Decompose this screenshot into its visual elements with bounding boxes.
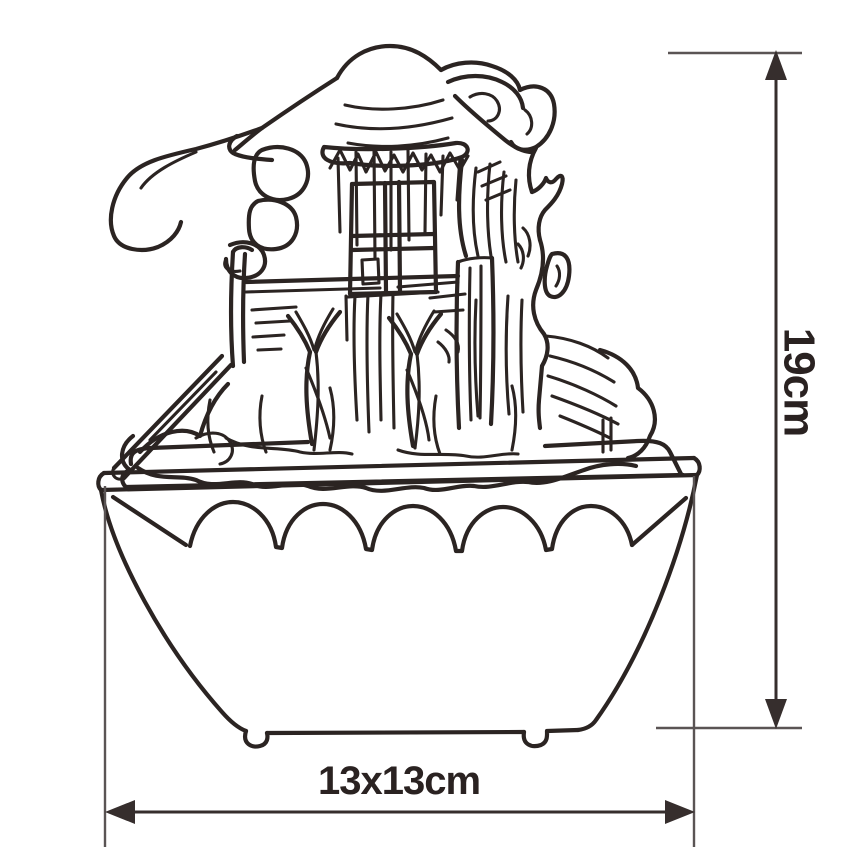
trunk-knot-inner xyxy=(556,266,560,286)
stream-1 xyxy=(354,296,357,420)
basin-rim-cap-right xyxy=(694,458,700,475)
branch-b-leg-1 xyxy=(407,354,413,446)
arrow-right-icon xyxy=(665,800,695,824)
roof-strand-curl xyxy=(470,94,499,121)
bark-lower-3 xyxy=(521,300,523,412)
fringe-stick-3 xyxy=(374,150,375,258)
scallop-left-slant xyxy=(113,497,186,545)
bark-line-2 xyxy=(488,164,492,262)
board-edge-top xyxy=(114,356,222,468)
water-dash-2 xyxy=(256,321,290,323)
board-edge-bottom xyxy=(124,365,231,478)
waterfall-column-right xyxy=(491,258,493,424)
window-cross-h1 xyxy=(352,234,434,236)
fountain-sketch xyxy=(98,46,699,746)
waterfall-inner-1 xyxy=(469,268,471,420)
water-dash-3 xyxy=(253,335,284,337)
branch-a-leg-1 xyxy=(306,352,312,444)
basin-foot-right xyxy=(524,730,578,746)
stream-3 xyxy=(380,294,381,420)
stream-2 xyxy=(367,294,369,432)
basin-foot-left xyxy=(245,731,267,746)
water-tick-2 xyxy=(438,342,449,362)
bark-lower-1 xyxy=(475,300,478,416)
pile-streak-4 xyxy=(512,386,516,450)
window-cross-v1 xyxy=(385,183,386,292)
height-dimension: 19cm xyxy=(656,50,824,729)
stream-5 xyxy=(346,296,347,340)
trunk-branch xyxy=(532,176,563,240)
trough-left-column-b xyxy=(243,254,245,362)
bark-line-1 xyxy=(473,168,478,256)
roof-left-slope xyxy=(235,78,337,150)
trunk-knot xyxy=(545,253,570,297)
waterfall-column-left xyxy=(457,262,459,428)
pile-streak-2 xyxy=(330,388,334,450)
basin-side-left xyxy=(101,490,246,731)
trunk-right-upper xyxy=(529,148,536,192)
fringe-stick-7 xyxy=(441,156,443,215)
basin-bottom-edge xyxy=(267,732,524,733)
fringe-stick-6 xyxy=(425,154,426,232)
tree-trunk xyxy=(459,148,569,428)
ripple-1 xyxy=(546,336,608,358)
bark-line-4 xyxy=(514,180,518,262)
fringe-stick-5 xyxy=(408,150,409,240)
scallop-arches xyxy=(190,502,632,551)
bark-lower-2 xyxy=(506,296,509,414)
basin-side-right xyxy=(578,475,697,730)
height-dimension-label: 19cm xyxy=(775,328,824,437)
trough-top-edge-3 xyxy=(398,282,458,287)
arrow-left-icon xyxy=(105,800,135,824)
fringe-stick-1 xyxy=(338,158,340,232)
basin xyxy=(98,441,699,747)
roof-strand-right-2 xyxy=(448,76,523,108)
trunk-left-edge xyxy=(459,160,466,256)
waterfall-top xyxy=(458,258,492,262)
water-dash-5 xyxy=(430,294,465,298)
trough-left-column-a xyxy=(231,252,233,366)
window-cross-v2 xyxy=(399,182,400,291)
stone-2 xyxy=(249,200,297,250)
water-dash-4 xyxy=(258,349,281,350)
basin-rim-cap-left xyxy=(98,473,104,490)
width-dimension-label: 13x13cm xyxy=(318,759,480,803)
water-dash-1 xyxy=(252,307,296,310)
trough-top-edge-2 xyxy=(246,288,380,292)
arrow-up-icon xyxy=(765,50,787,80)
fringe-stick-2 xyxy=(356,152,357,245)
window-cross-h2 xyxy=(352,248,434,250)
fountain-dimension-diagram: 19cm 13x13cm xyxy=(0,0,868,868)
waterfall-inner-2 xyxy=(480,266,481,418)
stone-stack xyxy=(225,147,308,278)
stream-4 xyxy=(393,293,394,428)
ripple-3 xyxy=(548,376,616,406)
roof-inner-curl-right xyxy=(525,110,532,134)
scallop-right-slant xyxy=(632,498,686,545)
branch-supports xyxy=(288,309,441,450)
pile-streak-3 xyxy=(434,396,440,454)
arrow-down-icon xyxy=(765,699,787,729)
thatch-line-2 xyxy=(336,118,452,129)
bark-line-3 xyxy=(502,172,506,262)
roof-peak xyxy=(337,46,441,78)
bark-curve-2 xyxy=(518,244,523,268)
thatch-line-1 xyxy=(345,100,443,109)
pile-mid-wave-2 xyxy=(398,450,518,457)
trough-column-hook xyxy=(233,247,252,252)
stone-1 xyxy=(254,147,308,200)
diagram-canvas: 19cm 13x13cm xyxy=(0,0,868,868)
trough-top-edge-1 xyxy=(246,276,458,282)
bark-hatch-3 xyxy=(486,190,510,200)
